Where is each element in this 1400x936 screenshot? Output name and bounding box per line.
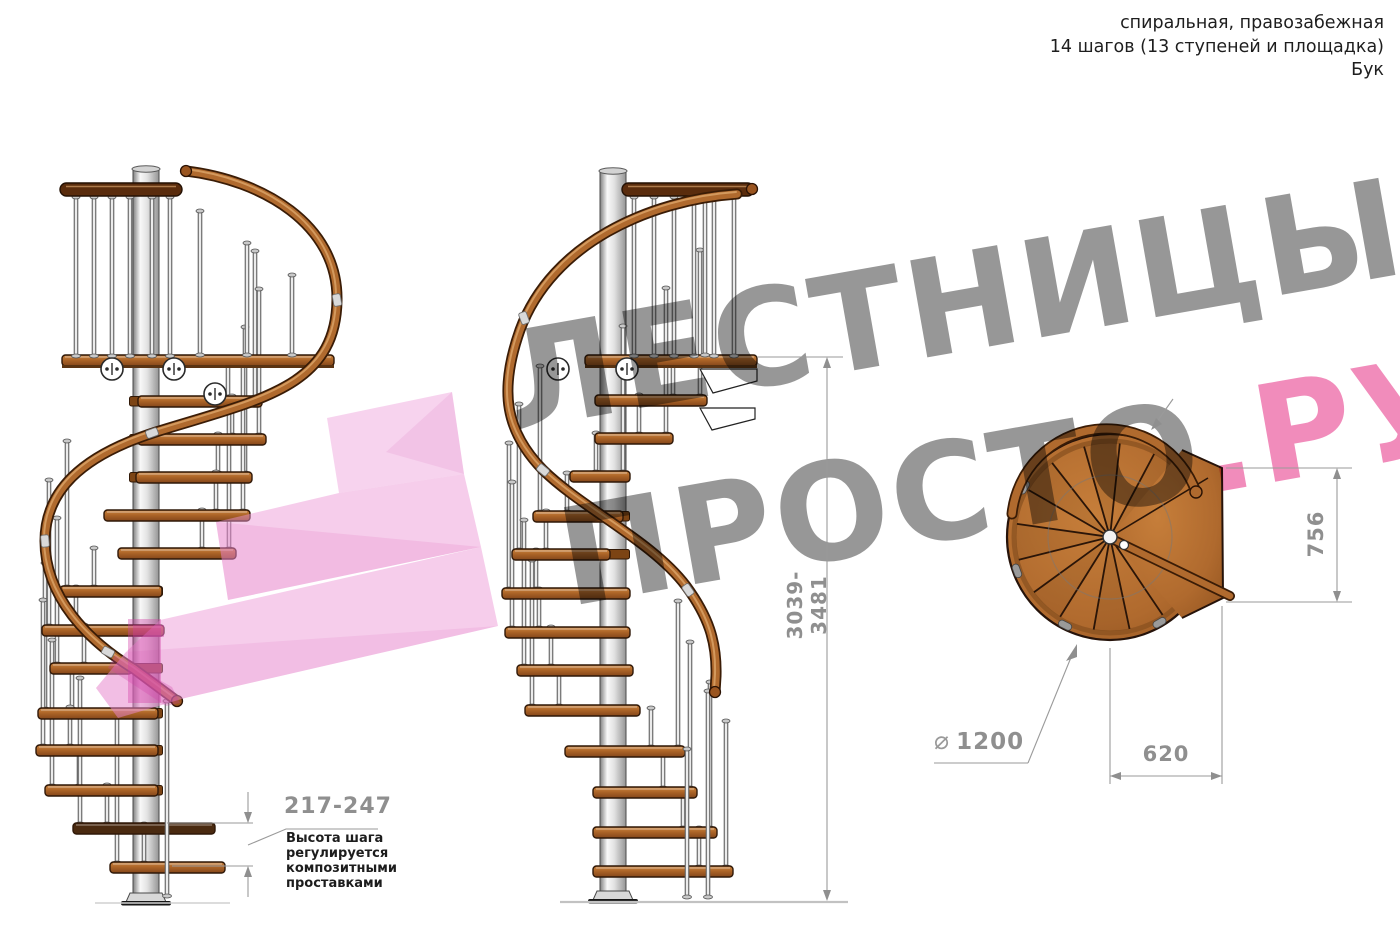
annotation-line: композитными [286, 861, 397, 876]
step-height-annotation: Высота шага регулируется композитными пр… [286, 831, 397, 891]
watermark-bottom-gray-text: ПРОСТО [547, 370, 1215, 638]
annotation-line: регулируется [286, 846, 397, 861]
platform-depth-dimension-label: 756 [1304, 494, 1328, 574]
watermark-bottom-text: ПРОСТО.РУ [549, 335, 1400, 627]
annotation-line: Высота шага [286, 831, 397, 846]
diameter-symbol-icon: ⌀ [934, 726, 950, 755]
pink-highlight-overlay [96, 392, 498, 718]
left-staircase-side-view [36, 166, 342, 906]
dimension-lines-layer [0, 0, 1400, 936]
total-height-dimension-label: 3039-3481 [783, 545, 831, 665]
plan-top-view [1007, 429, 1230, 640]
platform-width-dimension-label: 620 [1126, 742, 1206, 766]
watermark-top-text: ЛЕСТНИЦЫ [494, 160, 1400, 451]
drawing-sheet: ЛЕСТНИЦЫ ПРОСТО.РУ спиральная, правозабе… [0, 0, 1400, 936]
staircase-drawing-canvas [0, 0, 1400, 936]
staircase-steps-text: 14 шагов (13 ступеней и площадка) [1050, 36, 1384, 60]
title-block: спиральная, правозабежная 14 шагов (13 с… [1050, 12, 1384, 83]
step-height-dimension-label: 217-247 [284, 794, 392, 819]
watermark: ЛЕСТНИЦЫ ПРОСТО.РУ [0, 0, 1400, 936]
watermark-bottom-pink-text: .РУ [1188, 324, 1400, 524]
staircase-type-text: спиральная, правозабежная [1050, 12, 1384, 36]
diameter-dimension-label: ⌀1200 [934, 726, 1024, 755]
middle-staircase-side-view [502, 168, 758, 904]
annotation-line: проставками [286, 876, 397, 891]
staircase-material-text: Бук [1050, 59, 1384, 83]
diameter-value-text: 1200 [956, 729, 1024, 755]
